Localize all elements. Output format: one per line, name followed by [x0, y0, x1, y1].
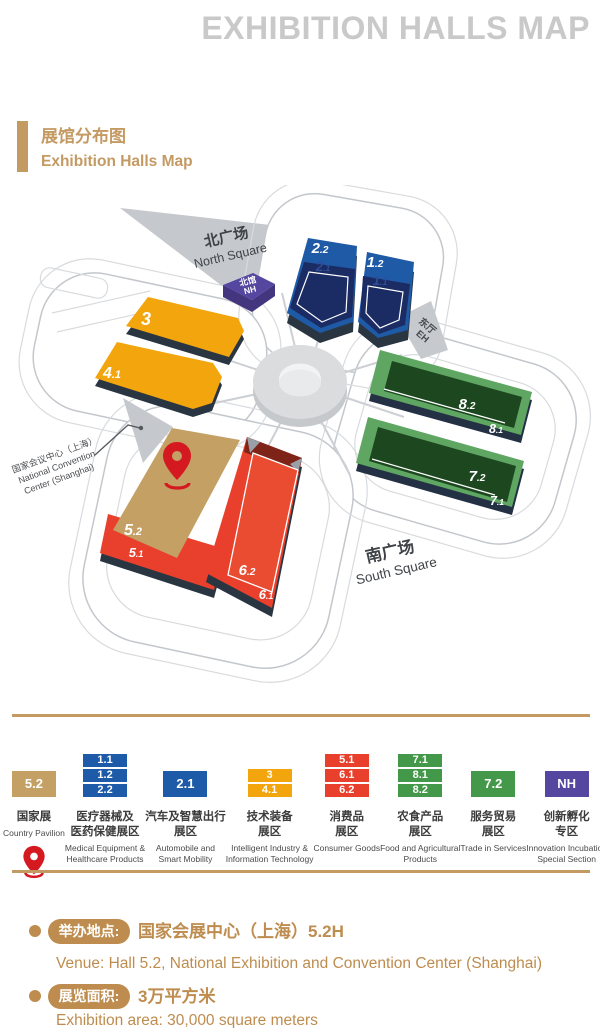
- legend-item-trade-services: 7.2 服务贸易展区 Trade in Services: [460, 751, 526, 880]
- legend-box: 1.1: [83, 754, 127, 767]
- legend: 5.2 国家展 Country Pavilion 1.1 1.2 2.2 医疗器…: [3, 751, 597, 880]
- hall-1: 1.2 1.1: [358, 252, 414, 348]
- svg-text:7.1: 7.1: [490, 494, 504, 508]
- section-title-zh: 展馆分布图: [41, 122, 193, 147]
- area-value-zh: 3万平方米: [138, 984, 215, 1009]
- legend-item-tech-equipment: 3 4.1 技术装备展区 Intelligent Industry &Infor…: [226, 751, 314, 880]
- svg-text:3: 3: [141, 309, 151, 329]
- venue-value-zh: 国家会展中心（上海）5.2H: [138, 919, 344, 944]
- section-header: 展馆分布图 Exhibition Halls Map: [17, 121, 193, 172]
- legend-item-country-pavilion: 5.2 国家展 Country Pavilion: [3, 751, 65, 880]
- legend-box: 8.2: [398, 784, 442, 797]
- legend-box: 2.1: [163, 771, 207, 797]
- section-title-en: Exhibition Halls Map: [41, 153, 193, 171]
- legend-box: 8.1: [398, 769, 442, 782]
- exhibition-map-page: EXHIBITION HALLS MAP 展馆分布图 Exhibition Ha…: [0, 0, 600, 1028]
- bullet-icon: [29, 925, 41, 937]
- venue-label-pill: 举办地点:: [48, 919, 130, 944]
- svg-text:8.1: 8.1: [489, 422, 503, 436]
- area-value-en: Exhibition area: 30,000 square meters: [56, 1012, 318, 1028]
- section-accent-bar: [17, 121, 28, 172]
- area-label-pill: 展览面积:: [48, 984, 130, 1009]
- legend-box: 4.1: [248, 784, 292, 797]
- legend-box: 5.2: [12, 771, 56, 797]
- divider-bottom: [12, 870, 590, 873]
- legend-box: 2.2: [83, 784, 127, 797]
- legend-box: 3: [248, 769, 292, 782]
- country-pavilion-pin-icon: [17, 844, 51, 880]
- legend-box: 1.2: [83, 769, 127, 782]
- venue-value-en: Venue: Hall 5.2, National Exhibition and…: [56, 955, 542, 973]
- legend-box: NH: [545, 771, 589, 797]
- divider-top: [12, 714, 590, 717]
- legend-item-medical: 1.1 1.2 2.2 医疗器械及医药保健展区 Medical Equipmen…: [65, 751, 145, 880]
- legend-item-innovation: NH 创新孵化专区 Innovation IncubationSpecial S…: [526, 751, 600, 880]
- legend-box: 6.2: [325, 784, 369, 797]
- bullet-icon: [29, 990, 41, 1002]
- legend-item-food-agri: 7.1 8.1 8.2 农食产品展区 Food and Agricultural…: [380, 751, 460, 880]
- exhibition-halls-map: 北广场 North Square 国家会议中心（上海） National Con…: [0, 185, 600, 705]
- page-title: EXHIBITION HALLS MAP: [201, 10, 590, 47]
- legend-box: 5.1: [325, 754, 369, 767]
- south-square-label: 南广场 South Square: [349, 532, 438, 588]
- central-ring: [253, 345, 347, 427]
- legend-item-automobile: 2.1 汽车及智慧出行展区 Automobile andSmart Mobili…: [145, 751, 226, 880]
- legend-box: 6.1: [325, 769, 369, 782]
- legend-box: 7.1: [398, 754, 442, 767]
- legend-box: 7.2: [471, 771, 515, 797]
- legend-item-consumer-goods: 5.1 6.1 6.2 消费品展区 Consumer Goods: [313, 751, 380, 880]
